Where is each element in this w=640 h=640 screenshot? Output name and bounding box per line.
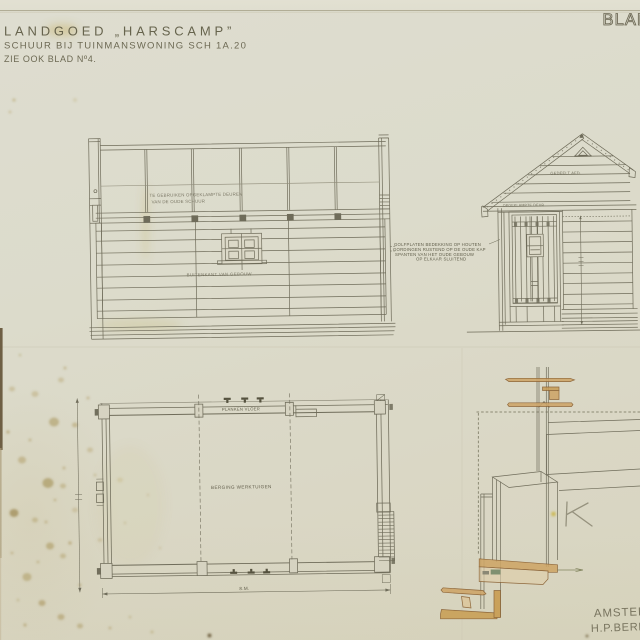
svg-text:ZIE OOK BLAD Nº4.: ZIE OOK BLAD Nº4. xyxy=(4,54,97,64)
svg-text:H.P.BERLAGE: H.P.BERLAGE xyxy=(591,620,640,635)
svg-text:TE GEBRUIKEN OPGEKLAMPTE DEURE: TE GEBRUIKEN OPGEKLAMPTE DEUREN xyxy=(149,192,242,198)
svg-text:LANDGOED „HARSCAMP”: LANDGOED „HARSCAMP” xyxy=(4,24,235,39)
svg-text:VAN DE OUDE SCHUUR: VAN DE OUDE SCHUUR xyxy=(152,199,206,205)
svg-text:SCHUUR BIJ TUINMANSWONING SCH: SCHUUR BIJ TUINMANSWONING SCH 1A.20 xyxy=(4,41,247,52)
svg-text:GEDEELT AFD.: GEDEELT AFD. xyxy=(550,170,581,175)
svg-text:BERGING WERKTUIGEN: BERGING WERKTUIGEN xyxy=(211,484,272,490)
svg-text:OPGEKLAMPTE DEUR: OPGEKLAMPTE DEUR xyxy=(503,203,545,207)
svg-text:8.M.: 8.M. xyxy=(239,586,249,591)
svg-text:OP ELKAAR SLUITEND: OP ELKAAR SLUITEND xyxy=(416,257,466,262)
svg-text:AMSTERDAM: AMSTERDAM xyxy=(594,605,640,620)
svg-text:BUITENKANT VAN GEBOUW: BUITENKANT VAN GEBOUW xyxy=(187,271,253,277)
svg-text:BLAD: BLAD xyxy=(603,11,640,29)
svg-text:PLANKEN VLOER: PLANKEN VLOER xyxy=(222,406,260,412)
